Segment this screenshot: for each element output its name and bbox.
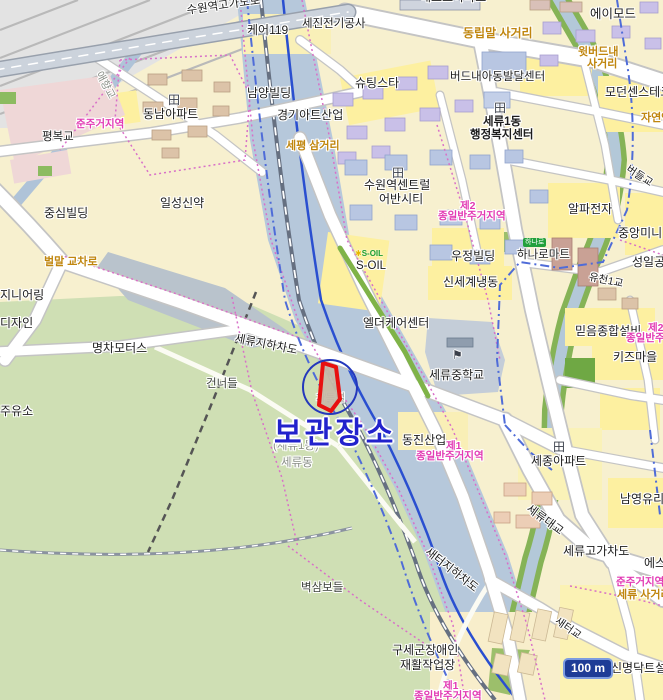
label-zone2-b: 종일반주거지역: [438, 211, 506, 223]
label-zone1-bottom-b: 종일반주거지역: [414, 691, 482, 700]
label-ilsung-pharma: 일성신약: [160, 197, 204, 210]
apartment-icon: 田: [168, 91, 180, 108]
label-myeongcha-motors: 명차모터스: [92, 342, 147, 355]
scale-label: 100 m: [571, 661, 605, 675]
label-shooting-star: 슈팅스타: [355, 77, 399, 90]
label-elder-care-center: 엘더케어센터: [363, 317, 429, 330]
scale-bar: 100 m: [563, 658, 613, 679]
label-dongnipmal-junction: 동립말 사거리: [463, 27, 533, 40]
label-s-oil: S-OIL: [356, 260, 386, 273]
label-beodeunae-child-center: 버드내아동발달센터: [450, 71, 545, 84]
label-beolmal-junction: 벌말 교차로: [44, 256, 98, 268]
label-jayeon-clipped: 자연앤: [641, 112, 663, 124]
label-hanaro-mart: 하나로마트: [517, 249, 570, 262]
label-dongnam-apartment: 동남아파트: [143, 108, 198, 121]
label-namyoung-glass: 남영유리: [620, 493, 663, 506]
label-sepyeong-junction: 세평 삼거리: [286, 140, 340, 152]
label-modern-sense-tech: 모던센스테크: [605, 86, 663, 99]
label-seryu-overpass: 세류고가차도: [563, 545, 629, 558]
label-salvation-army-2: 재활작업장: [400, 659, 455, 672]
label-amode: 에이모드: [590, 8, 636, 22]
label-semi-residential-tl: 준주거지역: [76, 119, 124, 131]
label-es-clipped: 에스: [644, 557, 663, 570]
label-witbeodeunae-junction-1: 윗버드내: [578, 46, 618, 58]
label-top-clipped-apartment: 해모로아파트: [420, 0, 486, 4]
label-design-clipped: 디자인: [0, 317, 33, 330]
hanaro-logo: 하나로: [523, 238, 546, 247]
label-kids-village: 키즈마을: [613, 351, 657, 364]
label-seryu1dong: 세류1동: [483, 116, 521, 129]
label-geonneodeul-field: 건너들: [206, 378, 238, 391]
label-sejin-electric: 세진전기공사: [302, 18, 365, 31]
label-jungsim-building: 중심빌딩: [44, 207, 88, 220]
label-pyeongbok-bridge: 평복교: [42, 131, 74, 144]
label-jungang-mini: 중앙미니: [618, 227, 662, 240]
label-gas-station-clipped: 주유소: [0, 405, 33, 418]
label-dongjin-industry: 동진산업: [402, 434, 446, 447]
label-salvation-army-1: 구세군장애인: [392, 644, 458, 657]
label-witbeodeunae-junction-2: 사거리: [587, 58, 617, 70]
label-zone2-right-b: 종일반주거지역: [626, 333, 663, 345]
map-viewport[interactable]: 차득벌 수원역고가도로 케어119 세진전기공사 해모로아파트 에이모드 동립말…: [0, 0, 663, 700]
apartment-icon: 田: [553, 438, 565, 455]
label-seryu-middle-school: 세류중학교: [429, 369, 484, 382]
label-shinsegae-cold: 신세계냉동: [443, 276, 498, 289]
s-oil-logo-text: S-OIL: [362, 249, 383, 258]
label-seongil: 성일공업: [632, 256, 663, 269]
label-shinmyung-duct: 신명닥트설비: [611, 662, 663, 675]
label-woojung-building: 우정빌딩: [451, 250, 495, 263]
label-seryu-junction: 세류 사거리: [617, 589, 663, 601]
label-byeoksam-field: 벽삼보들: [301, 582, 343, 595]
label-sejong-apartment: 세종아파트: [531, 455, 586, 468]
star-icon: ✱: [355, 249, 362, 258]
storage-parcel-polygon: [319, 363, 340, 411]
apartment-icon: 田: [392, 164, 404, 181]
label-gyeonggi-art: 경기아트산업: [277, 109, 343, 122]
apartment-icon: 田: [494, 99, 506, 116]
label-semi-residential-right: 준주거지역: [616, 577, 663, 589]
label-suwon-central-2: 어반시티: [379, 193, 423, 206]
storage-annotation-label: 보관장소: [274, 408, 396, 452]
label-alpha-electronics: 알파전자: [568, 203, 612, 216]
label-zone1-b: 종일반주거지역: [416, 451, 484, 463]
school-flag-icon: ⚑: [452, 348, 463, 362]
s-oil-logo: ✱S-OIL: [355, 249, 383, 258]
label-care119: 케어119: [247, 24, 288, 37]
label-namyang-building: 남양빌딩: [247, 87, 291, 100]
label-community-center: 행정복지센터: [470, 129, 533, 142]
label-seryudong: 세류동: [281, 457, 313, 470]
label-engineering-clipped: 지니어링: [0, 289, 44, 302]
